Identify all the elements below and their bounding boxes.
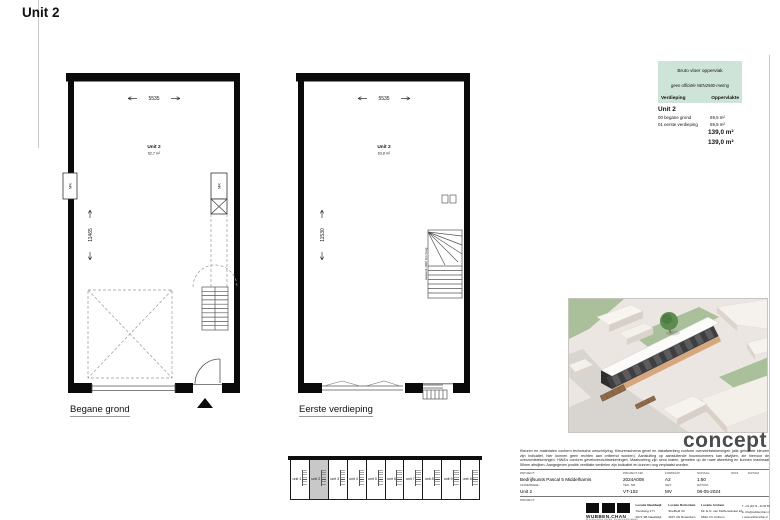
table-row: 00 begane grond 69,5 m² [658, 115, 742, 120]
keyplan-unit-7: unit 7 [404, 460, 423, 499]
room-label: Unit 2 [377, 144, 391, 150]
shaft-boxes [442, 195, 456, 203]
area-table-subtitle: geen officiële NEN2580-meting [661, 83, 739, 88]
dimension-width: 5535 [128, 96, 180, 102]
mini-stair-icon [434, 470, 440, 486]
keyplan-unit-8: unit 8 [423, 460, 442, 499]
area-table-header: Bruto vloer oppervlak geen officiële NEN… [658, 61, 742, 103]
keyplan-unit-3: unit 3 [329, 460, 348, 499]
field-project-nr: PROJECT NR.2024A008 [623, 471, 665, 482]
mini-stair-icon [378, 470, 384, 486]
floor-cell: 01 eerste verdieping [658, 122, 710, 127]
keyplan-cells: unit 1 unit 2 unit 3 unit 4 unit 5 unit … [290, 460, 480, 500]
area-table-title: Bruto vloer oppervlak [661, 69, 739, 74]
floor-cell: 00 begane grond [658, 115, 710, 120]
location-naaldwijk: Locatie Naaldwijk Tiendweg 2 H 2671 SB N… [636, 503, 665, 520]
total-area: 139,0 m² [658, 129, 742, 136]
field-project2: PROJECT: [520, 498, 769, 502]
mini-stair-icon [472, 470, 478, 486]
mini-stair-icon [415, 470, 421, 486]
field-onderdeel: ONDERDEEL:Unit 2 [520, 483, 623, 494]
sheet-edge-right [769, 55, 770, 520]
mini-stair-icon [396, 470, 402, 486]
field-formaat: FORMAAT:A2 [665, 471, 697, 482]
meter-cabinet-right: MK [211, 173, 227, 214]
divider [520, 469, 769, 470]
ground-floor-caption: Begane grond [70, 404, 130, 417]
mini-stair-icon [453, 470, 459, 486]
titleblock-row: PROJECT:Bedrijfsunits Pascal 5 Middelhar… [520, 471, 769, 482]
dimension-height: 11530 [320, 210, 326, 260]
mini-stair-icon [359, 470, 365, 486]
field-wijz: WIJZ [731, 471, 748, 482]
contact-info: T. +31 (0)174 - 40 90 55 E. info@wubbenc… [742, 503, 769, 520]
field-get: GET.MV [665, 483, 697, 494]
dim-height-label: 11465 [88, 228, 94, 242]
french-balcony-grille [423, 390, 447, 399]
mk-label: MK [68, 183, 73, 189]
dimension-width: 5535 [358, 96, 410, 102]
area-table-group-label: Unit 2 [658, 106, 742, 113]
field-datum: DATUM:08-05-2024 [697, 483, 731, 494]
3d-render-scene [569, 299, 768, 433]
field-datum-col: DATUM [748, 471, 769, 482]
keyplan-unit-5: unit 5 [367, 460, 386, 499]
dim-height-label: 11530 [320, 228, 326, 242]
keyplan-unit-4: unit 4 [348, 460, 367, 499]
railing-note: Hekwerk 1000 mm hoog [424, 247, 428, 280]
drawing-sheet: Unit 2 5535 11465 Unit [0, 0, 780, 520]
titleblock-row: ONDERDEEL:Unit 2 TEK. NR.VT-102 GET.MV D… [520, 483, 769, 494]
location-rotterdam: Locatie Rotterdam Sheffield 33 3047 AN R… [668, 503, 697, 520]
room-area-label: 63,8 m² [378, 152, 391, 156]
area-cell: 69,5 m² [710, 122, 725, 127]
company-logo: WUBBEN.CHAN BOUWKUNDIG TEKEN- EN ADVIESB… [586, 503, 632, 520]
mini-stair-icon [321, 470, 327, 486]
area-cell: 69,5 m² [710, 115, 725, 120]
first-floor-caption: Eerste verdieping [299, 404, 373, 417]
field-project: PROJECT:Bedrijfsunits Pascal 5 Middelhar… [520, 471, 623, 482]
logo-squares-icon [586, 503, 632, 514]
room-label: Unit 2 [147, 144, 161, 150]
location-arnhem: Locatie Arnhem Mr. E.N. van Kleffensstra… [701, 503, 741, 520]
dim-width-label: 5535 [378, 96, 389, 102]
field-tek-nr: TEK. NR.VT-102 [623, 483, 665, 494]
page-title: Unit 2 [22, 5, 60, 20]
keyplan-unit-6: unit 6 [386, 460, 405, 499]
disclaimer-text: Kleuren en materialen conform technische… [520, 449, 769, 468]
total-area: 139,0 m² [658, 139, 742, 146]
keyplan-unit-9: unit 9 [442, 460, 461, 499]
keyplan: unit 1 unit 2 unit 3 unit 4 unit 5 unit … [290, 456, 480, 502]
front-window [92, 384, 175, 393]
field-schaal: SCHAAL:1:50 [697, 471, 731, 482]
keyplan-unit-10: unit 10 [461, 460, 480, 499]
staircase [428, 230, 462, 298]
mini-stair-icon [302, 470, 308, 486]
dimension-height: 11465 [88, 210, 94, 260]
entrance-marker-icon [197, 398, 213, 408]
keyplan-unit-2-highlighted: unit 2 [310, 460, 329, 499]
front-windows [322, 381, 453, 390]
titleblock-footer: WUBBEN.CHAN BOUWKUNDIG TEKEN- EN ADVIESB… [520, 503, 769, 520]
3d-render-image [568, 298, 768, 433]
entrance-door [193, 359, 222, 385]
area-table: Bruto vloer oppervlak geen officiële NEN… [658, 61, 742, 146]
divider [520, 496, 769, 497]
ground-floor-plan: 5535 11465 Unit 2 62,7 m² MK MK [58, 60, 258, 412]
keyplan-unit-1: unit 1 [290, 460, 310, 499]
dim-width-label: 5535 [148, 96, 159, 102]
first-floor-plan: 5535 11530 Unit 2 63,8 m² Hekwerk 1000 m… [288, 60, 488, 412]
mk-label: MK [217, 183, 222, 189]
sheet-edge-left [38, 0, 39, 148]
mini-stair-icon [340, 470, 346, 486]
room-area-label: 62,7 m² [148, 152, 161, 156]
col-header-verdieping: Verdieping [661, 96, 686, 101]
col-header-oppervlakte: Oppervlakte [711, 96, 739, 101]
titleblock: Kleuren en materialen conform technische… [520, 449, 769, 520]
table-row: 01 eerste verdieping 69,5 m² [658, 122, 742, 127]
staircase [202, 287, 228, 330]
meter-cabinet-left: MK [63, 173, 77, 199]
